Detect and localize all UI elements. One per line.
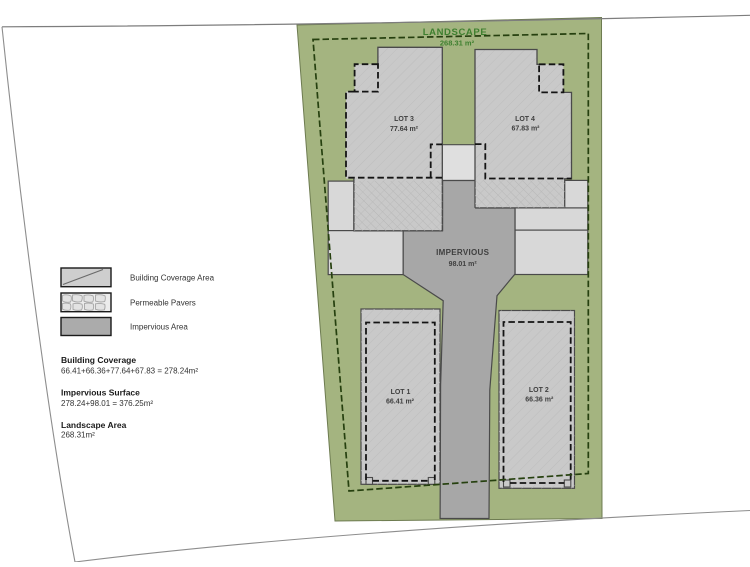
svg-text:278.24+98.01 = 376.25m²: 278.24+98.01 = 376.25m² bbox=[61, 399, 153, 408]
svg-text:268.31 m²: 268.31 m² bbox=[440, 39, 475, 48]
svg-text:66.36 m²: 66.36 m² bbox=[525, 397, 554, 404]
svg-text:98.01 m²: 98.01 m² bbox=[449, 261, 478, 268]
svg-text:IMPERVIOUS: IMPERVIOUS bbox=[436, 248, 489, 257]
svg-text:Building Coverage: Building Coverage bbox=[61, 355, 136, 365]
svg-text:Impervious Surface: Impervious Surface bbox=[61, 388, 140, 398]
svg-text:Landscape Area: Landscape Area bbox=[61, 420, 127, 430]
svg-text:77.64 m²: 77.64 m² bbox=[390, 126, 419, 133]
svg-text:66.41 m²: 66.41 m² bbox=[386, 399, 415, 406]
svg-text:LOT 3: LOT 3 bbox=[394, 116, 414, 123]
svg-text:67.83 m²: 67.83 m² bbox=[511, 126, 540, 133]
svg-text:Impervious Area: Impervious Area bbox=[130, 323, 188, 332]
svg-text:66.41+66.36+77.64+67.83 = 278.: 66.41+66.36+77.64+67.83 = 278.24m² bbox=[61, 367, 198, 376]
svg-text:LOT 2: LOT 2 bbox=[529, 387, 549, 394]
svg-text:Building Coverage Area: Building Coverage Area bbox=[130, 274, 215, 283]
svg-text:LANDSCAPE: LANDSCAPE bbox=[423, 27, 488, 38]
svg-text:268.31m²: 268.31m² bbox=[61, 431, 95, 440]
svg-text:LOT 1: LOT 1 bbox=[391, 389, 411, 396]
svg-text:LOT 4: LOT 4 bbox=[515, 116, 535, 123]
svg-text:Permeable Pavers: Permeable Pavers bbox=[130, 299, 196, 308]
